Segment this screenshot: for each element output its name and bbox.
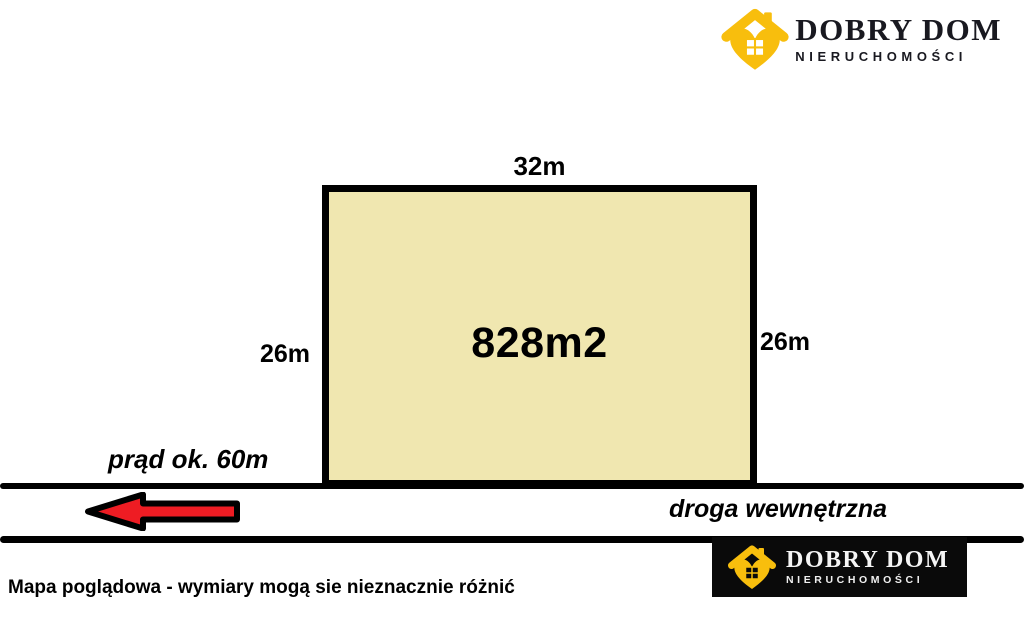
road-name-label: droga wewnętrzna bbox=[669, 495, 887, 524]
agency-logo-text: DOBRY DOM NIERUCHOMOŚCI bbox=[795, 14, 1002, 64]
plot-height-label-right: 26m bbox=[760, 328, 810, 357]
house-heart-icon bbox=[719, 4, 791, 74]
left-arrow-icon bbox=[84, 492, 246, 531]
plot-parcel: 828m2 bbox=[322, 185, 757, 487]
agency-name: DOBRY DOM bbox=[786, 548, 949, 572]
power-distance-label: prąd ok. 60m bbox=[108, 444, 268, 475]
agency-logo-top: DOBRY DOM NIERUCHOMOŚCI bbox=[719, 4, 1002, 74]
agency-name: DOBRY DOM bbox=[795, 14, 1002, 47]
agency-subtitle: NIERUCHOMOŚCI bbox=[795, 49, 1002, 64]
agency-subtitle: NIERUCHOMOŚCI bbox=[786, 574, 949, 586]
agency-logo-bottom: DOBRY DOM NIERUCHOMOŚCI bbox=[712, 537, 967, 597]
plot-height-label-left: 26m bbox=[228, 340, 310, 369]
plot-area-label: 828m2 bbox=[471, 305, 607, 368]
agency-logo-text: DOBRY DOM NIERUCHOMOŚCI bbox=[786, 548, 949, 586]
plot-map-canvas: DOBRY DOM NIERUCHOMOŚCI 32m 26m 26m 828m… bbox=[0, 0, 1024, 618]
house-heart-icon bbox=[726, 542, 778, 592]
plot-width-label: 32m bbox=[322, 151, 757, 182]
disclaimer-text: Mapa poglądowa - wymiary mogą sie niezna… bbox=[8, 577, 515, 599]
